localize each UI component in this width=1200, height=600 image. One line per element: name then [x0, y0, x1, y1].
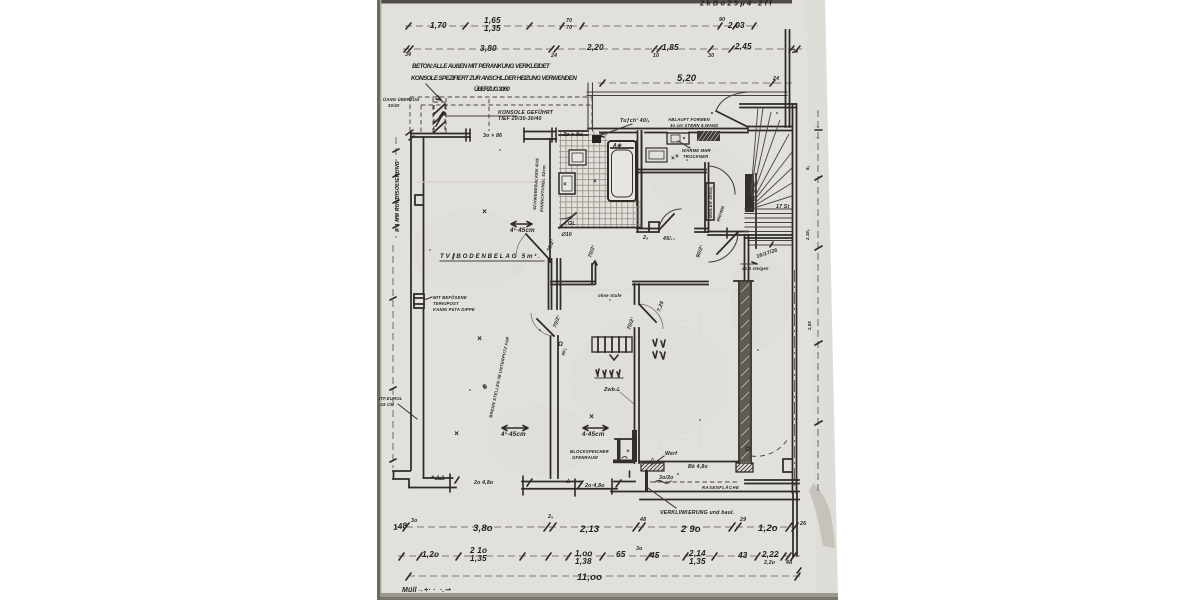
svg-text:KONSOLE SPEZIFIERT ZUR ANSCHL.: KONSOLE SPEZIFIERT ZUR ANSCHL.DER HEIZUN…: [411, 75, 577, 82]
svg-text:×: ×: [589, 412, 594, 421]
svg-text:2ₔ: 2ₔ: [547, 514, 553, 520]
svg-text:2o 4,8o: 2o 4,8o: [473, 480, 493, 486]
svg-text:ÜBERZUG 30/60: ÜBERZUG 30/60: [474, 86, 510, 93]
svg-text:∅10: ∅10: [561, 232, 572, 238]
svg-text:BLOCKSPEICHER: BLOCKSPEICHER: [570, 449, 609, 454]
svg-text:4¹·45cm: 4¹·45cm: [500, 431, 526, 438]
svg-text:→: →: [814, 123, 820, 130]
svg-text:70: 70: [566, 18, 572, 24]
svg-text:48: 48: [639, 517, 646, 523]
svg-text:1,70: 1,70: [430, 21, 447, 30]
svg-text:24: 24: [550, 53, 557, 59]
svg-text:+: +: [626, 448, 630, 455]
svg-text:2kBo25μ4·2ff: 2kBo25μ4·2ff: [699, 0, 773, 8]
svg-text:VERKLINKERUNG und baul.: VERKLINKERUNG und baul.: [660, 510, 734, 516]
svg-text:MIT BEFÖSENE: MIT BEFÖSENE: [433, 295, 467, 300]
svg-text:4·45cm: 4·45cm: [581, 431, 605, 438]
svg-text:34: 34: [405, 52, 411, 58]
svg-text:2,45: 2,45: [734, 42, 752, 51]
svg-text:1,35: 1,35: [689, 557, 706, 566]
svg-text:3o: 3o: [636, 546, 642, 552]
svg-text:24: 24: [772, 76, 779, 82]
svg-text:45/₁₃: 45/₁₃: [662, 236, 675, 242]
svg-text:24: 24: [791, 49, 798, 55]
svg-text:×: ×: [477, 334, 482, 343]
svg-text:29: 29: [739, 517, 746, 523]
svg-text:A⊕: A⊕: [612, 143, 622, 149]
svg-text:2,22: 2,22: [761, 550, 779, 559]
svg-text:3o/2o: 3o/2o: [659, 475, 674, 481]
svg-text:30: 30: [708, 53, 714, 59]
svg-text:17 St: 17 St: [776, 204, 789, 210]
svg-text:2 9o: 2 9o: [680, 524, 701, 535]
svg-text:1,35: 1,35: [470, 554, 487, 563]
svg-text:43: 43: [737, 551, 748, 560]
svg-text:5,20: 5,20: [677, 73, 697, 84]
svg-text:TERKIPOST: TERKIPOST: [433, 301, 459, 306]
svg-text:2o·4,8o: 2o·4,8o: [584, 483, 605, 489]
svg-text:2,20: 2,20: [586, 43, 604, 52]
svg-text:3o cm STERN 8.WAND: 3o cm STERN 8.WAND: [670, 123, 719, 128]
svg-text:1,2o: 1,2o: [758, 523, 778, 534]
svg-text:1,2o: 1,2o: [422, 550, 439, 559]
svg-text:Tuƒch¹ 40/ₓ: Tuƒch¹ 40/ₓ: [620, 118, 651, 124]
svg-text:70: 70: [566, 25, 572, 31]
svg-text:1,85: 1,85: [662, 43, 679, 52]
svg-text:1,35: 1,35: [484, 24, 501, 33]
svg-text:65: 65: [616, 550, 626, 559]
svg-text:RASENFLÄCHE: RASENFLÄCHE: [702, 485, 739, 490]
svg-text:KONSOLE GEFÜHRT: KONSOLE GEFÜHRT: [498, 109, 554, 116]
svg-text:△: △: [565, 478, 570, 484]
svg-text:TIEF 20/30-30/40: TIEF 20/30-30/40: [498, 116, 542, 122]
svg-text:10: 10: [653, 53, 659, 59]
svg-text:Zwb₂L: Zwb₂L: [603, 387, 621, 393]
svg-text:BETON:ALLE AUßEN MIT PERANKUNG: BETON:ALLE AUßEN MIT PERANKUNG VERKLEIDE…: [412, 63, 551, 70]
svg-text:26: 26: [799, 521, 806, 527]
svg-text:Müll→+· · ·.⇀: Müll→+· · ·.⇀: [402, 587, 451, 594]
svg-text:BOILER 405/4ₐ: BOILER 405/4ₐ: [708, 186, 713, 218]
svg-text:-15 CM: -15 CM: [379, 402, 394, 407]
svg-text:×: ×: [675, 153, 679, 160]
svg-text:1,38: 1,38: [575, 557, 592, 566]
svg-text:30/40: 30/40: [388, 103, 400, 108]
svg-text:×: ×: [593, 178, 597, 185]
svg-text:2,85: 2,85: [807, 321, 812, 331]
svg-text:ab.4 steigen: ab.4 steigen: [742, 266, 769, 271]
svg-text:2,03: 2,03: [727, 21, 745, 30]
svg-text:ITF.EUROL: ITF.EUROL: [379, 396, 403, 401]
svg-text:3,8o: 3,8o: [473, 523, 493, 534]
svg-text:ÜANG ÜBERZUG: ÜANG ÜBERZUG: [383, 97, 420, 102]
svg-text:4¹·45cm: 4¹·45cm: [509, 227, 535, 234]
svg-text:+△△: +△△: [431, 474, 445, 481]
svg-text:45: 45: [649, 551, 660, 560]
svg-text:KANIN PüTA DIPPE: KANIN PüTA DIPPE: [433, 307, 475, 312]
svg-text:48: 48: [785, 560, 792, 566]
svg-text:×: ×: [563, 181, 567, 188]
svg-text:A 4 MM RUNDISOLIERUNG: A 4 MM RUNDISOLIERUNG: [395, 161, 401, 233]
svg-text:8ₔ: 8ₔ: [805, 165, 810, 170]
svg-text:GL: GL: [568, 221, 576, 227]
svg-text:3o × 86: 3o × 86: [483, 133, 502, 139]
svg-text:2o × 9o: 2o × 9o: [562, 132, 582, 138]
svg-text:2,2o: 2,2o: [763, 560, 775, 566]
svg-text:2,38ₔ: 2,38ₔ: [805, 229, 810, 241]
svg-text:OFENRAUM: OFENRAUM: [572, 455, 598, 460]
svg-text:×: ×: [482, 207, 487, 216]
svg-text:Werf: Werf: [665, 451, 678, 457]
svg-text:2ₔ: 2ₔ: [642, 235, 648, 241]
svg-text:ohne Stufe: ohne Stufe: [598, 293, 622, 298]
svg-text:90: 90: [719, 17, 725, 23]
svg-text:3o: 3o: [411, 518, 417, 524]
svg-text:Bk 4,8o: Bk 4,8o: [688, 464, 708, 470]
svg-text:ABLAUFT FORMEN: ABLAUFT FORMEN: [667, 117, 711, 122]
svg-text:→: →: [814, 134, 820, 141]
svg-text:2,13: 2,13: [579, 524, 600, 535]
svg-text:11,oo: 11,oo: [577, 572, 602, 583]
svg-text:WÄRME MHR: WÄRME MHR: [682, 148, 711, 153]
svg-text:×: ×: [454, 429, 459, 438]
svg-text:3,80: 3,80: [480, 44, 497, 53]
svg-text:TROCKNER: TROCKNER: [683, 154, 708, 159]
